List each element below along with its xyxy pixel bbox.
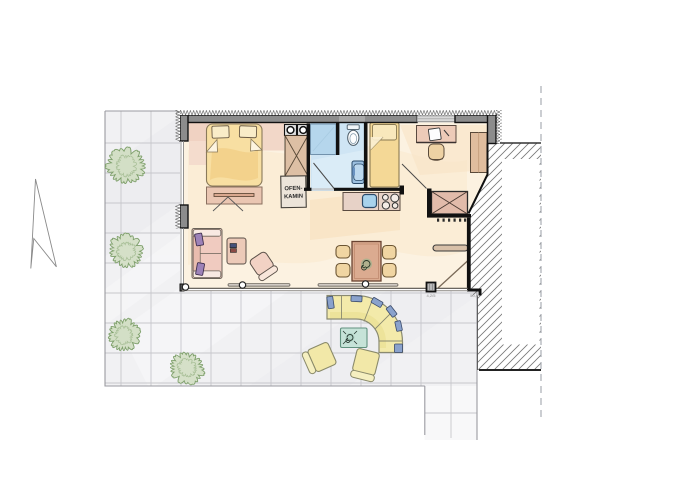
svg-text:KAMIN: KAMIN: [284, 194, 303, 201]
svg-text:4,2/5: 4,2/5: [427, 293, 437, 298]
svg-text:50,4: 50,4: [470, 293, 479, 298]
svg-text:OFEN-: OFEN-: [284, 186, 302, 193]
